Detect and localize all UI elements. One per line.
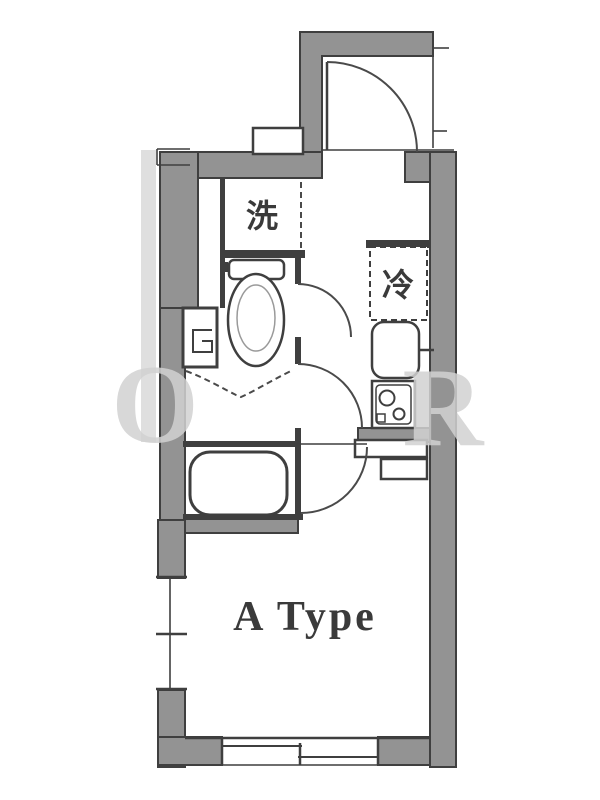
- washroom-bath-divider: [183, 441, 301, 447]
- wall-niche: [253, 128, 303, 154]
- toilet-cistern-valve: [220, 262, 228, 272]
- left-wall-upper: [160, 152, 198, 308]
- upper-wall: [188, 152, 322, 178]
- hall-wall-seg2: [295, 337, 301, 364]
- washer-west-wall: [220, 178, 225, 308]
- bathroom: [190, 452, 287, 515]
- room-label: A Type: [233, 594, 377, 640]
- fridge-label: 冷: [382, 267, 414, 303]
- hall-wall-seg1: [295, 250, 301, 284]
- washer-label: 洗: [246, 198, 278, 234]
- floorplan-image: 洗 冷 A: [0, 0, 600, 800]
- bathtub-fixture: [190, 452, 287, 515]
- watermark-letter-right: R: [403, 346, 485, 470]
- left-wall-room-upper: [158, 520, 185, 578]
- washer-toilet-divider: [222, 250, 305, 258]
- right-wall-jog: [405, 152, 430, 182]
- bath-bottom-wall: [185, 518, 298, 533]
- bottom-wall-left: [158, 737, 222, 765]
- floorplan-svg: 洗 冷 A: [0, 0, 600, 800]
- watermark-letter-left: O: [111, 343, 198, 467]
